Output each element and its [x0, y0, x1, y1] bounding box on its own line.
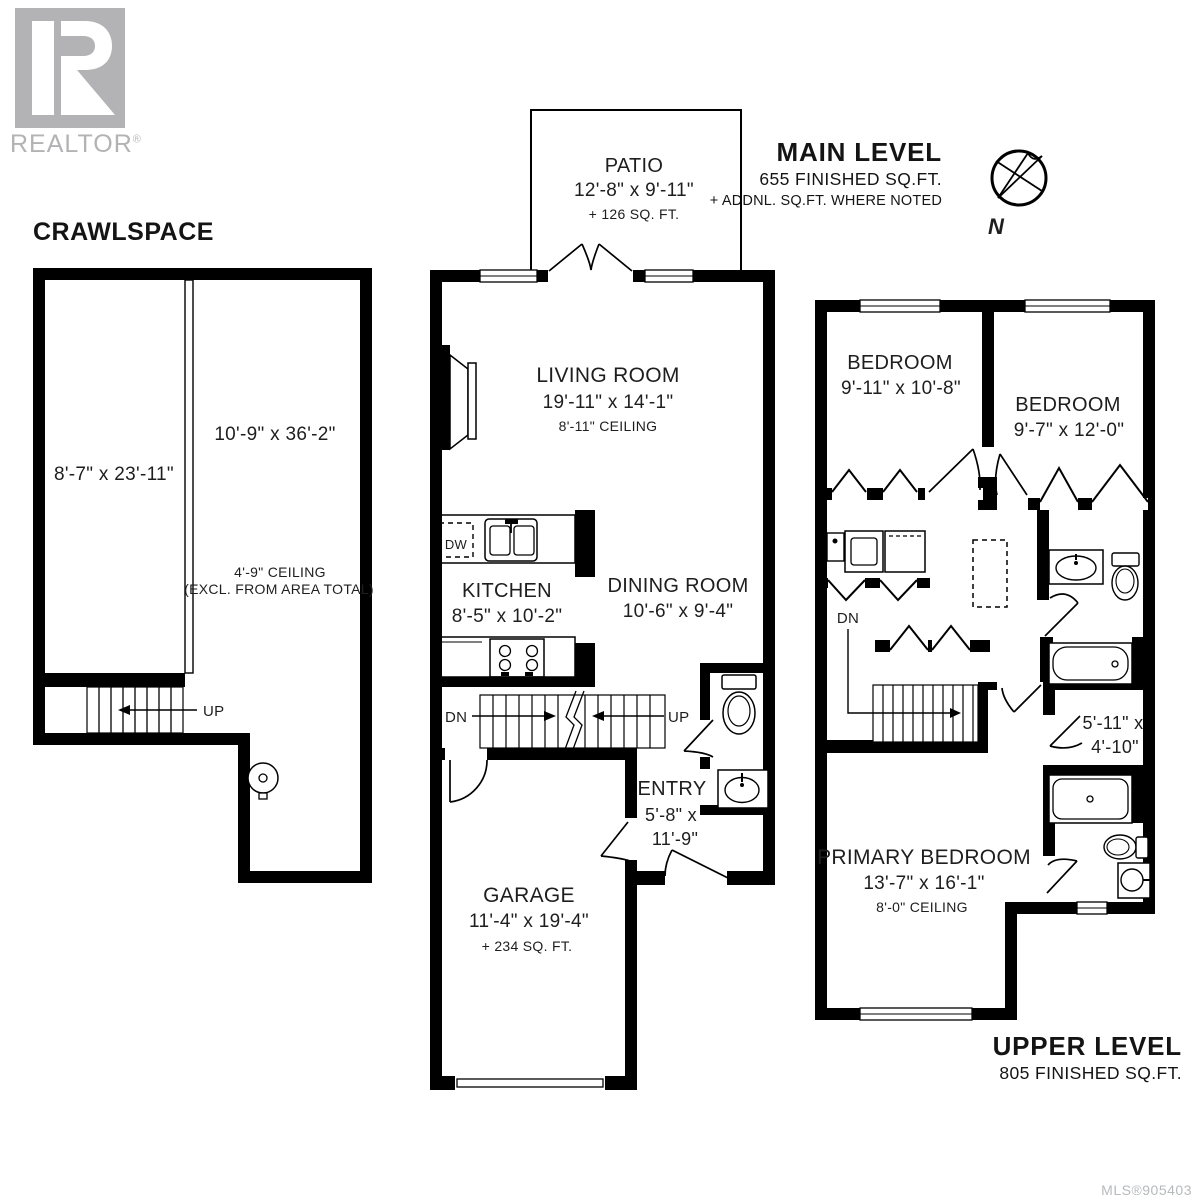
bedroom1-dims: 9'-11" x 10'-8"	[841, 378, 961, 399]
laundry-sink-icon	[827, 533, 844, 561]
crawlspace-divider-wall	[185, 280, 193, 673]
crawl-left-room-dims: 8'-7" x 23'-11"	[54, 464, 174, 485]
patio-dims: 12'-8" x 9'-11"	[574, 180, 694, 201]
compass-north-label: N	[988, 214, 1005, 239]
registered-mark: ®	[133, 134, 142, 146]
walkin-closet-dims-2: 4'-10"	[1091, 737, 1139, 757]
patio-label: PATIO	[605, 155, 664, 177]
garage-dims: 11'-4" x 19'-4"	[469, 911, 589, 932]
hall-dashed-closet	[973, 540, 1007, 607]
compass-needle-2	[998, 153, 1028, 198]
bedroom2-label: BEDROOM	[1015, 394, 1120, 416]
garage-door	[457, 1079, 603, 1087]
understairs-door	[450, 760, 487, 802]
bedroom1-door	[929, 449, 980, 492]
walkin-closet-dims-1: 5'-11" x	[1083, 713, 1144, 733]
living-room-dims: 19'-11" x 14'-1"	[543, 392, 674, 413]
bedroom1-label: BEDROOM	[847, 352, 952, 374]
realtor-wordmark: REALTOR®	[10, 130, 160, 159]
ensuite-sink-icon	[1118, 863, 1150, 898]
stair-dn-label: DN	[837, 610, 859, 627]
main-level-floorplan: PATIO 12'-8" x 9'-11" + 126 SQ. FT. LIVI…	[425, 105, 785, 1100]
bedroom2-door	[996, 454, 1027, 495]
bedroom2-dims: 9'-7" x 12'-0"	[1014, 420, 1125, 441]
stair-dn-label: DN	[445, 709, 467, 726]
realtor-wordmark-text: REALTOR	[10, 130, 133, 158]
kitchen-sink-icon	[485, 519, 537, 561]
stair-up-label: UP	[668, 709, 689, 726]
living-room-label: LIVING ROOM	[536, 364, 679, 387]
shower-icon	[1049, 775, 1132, 823]
crawl-right-room-dims: 10'-9" x 36'-2"	[214, 424, 335, 445]
laundry-closet	[827, 531, 925, 572]
powder-sink-icon	[718, 770, 768, 808]
entry-dims-1: 5'-8" x	[645, 805, 697, 825]
upper-level-area: 805 FINISHED SQ.FT.	[880, 1063, 1182, 1084]
mls-number: MLS®905403	[1101, 1182, 1192, 1198]
primary-bedroom-door	[1002, 685, 1041, 712]
bathroom-door	[1045, 594, 1078, 636]
ensuite-door	[1047, 859, 1077, 893]
crawlspace-room-wall	[45, 673, 185, 687]
crawlspace-stairs	[87, 687, 197, 733]
crawlspace-title: CRAWLSPACE	[33, 218, 214, 247]
dishwasher-label: DW	[445, 537, 468, 552]
floorplan-sheet: REALTOR® CRAWLSPACE MAIN LEVEL 655 FINIS…	[0, 0, 1200, 1200]
up-arrow-head	[118, 705, 130, 715]
washer-icon	[845, 531, 883, 572]
main-bath-sink-icon	[1049, 550, 1103, 584]
patio-area: + 126 SQ. FT.	[589, 206, 680, 222]
primary-bedroom-label: PRIMARY BEDROOM	[817, 846, 1031, 869]
main-stairs	[472, 691, 665, 752]
stove-icon	[490, 639, 544, 677]
kitchen-dims: 8'-5" x 10'-2"	[452, 606, 563, 627]
crawl-ceiling-note-1: 4'-9" CEILING	[234, 564, 326, 580]
realtor-logo	[15, 8, 125, 128]
living-room-ceiling: 8'-11" CEILING	[559, 418, 658, 434]
primary-bedroom-ceiling: 8'-0" CEILING	[876, 899, 968, 915]
upper-level-header: UPPER LEVEL 805 FINISHED SQ.FT.	[880, 1032, 1182, 1084]
upper-level-floorplan: BEDROOM 9'-11" x 10'-8" BEDROOM 9'-7" x …	[812, 296, 1160, 1024]
closet-door	[1050, 716, 1082, 748]
north-compass-icon: N	[986, 146, 1060, 240]
bathtub-icon	[1049, 643, 1132, 684]
crawl-stair-up-label: UP	[203, 703, 224, 720]
water-heater-icon	[248, 763, 278, 799]
realtor-r-stem	[32, 21, 54, 115]
kitchen-appliance-row	[433, 637, 575, 677]
entry-dims-2: 11'-9"	[652, 829, 698, 849]
dining-room-dims: 10'-6" x 9'-4"	[623, 601, 734, 622]
realtor-r-counter	[61, 36, 95, 56]
entry-label: ENTRY	[638, 778, 707, 800]
crawlspace-floorplan: 8'-7" x 23'-11" 10'-9" x 36'-2" 4'-9" CE…	[30, 264, 375, 888]
upper-level-title: UPPER LEVEL	[880, 1032, 1182, 1061]
fireplace-icon	[442, 345, 476, 450]
main-bath-toilet-icon	[1112, 553, 1139, 600]
dining-room-label: DINING ROOM	[607, 575, 748, 597]
dryer-icon	[885, 531, 925, 572]
ensuite-toilet-icon	[1104, 835, 1148, 859]
powder-toilet-icon	[722, 675, 756, 734]
garage-area: + 234 SQ. FT.	[482, 938, 573, 954]
garage-label: GARAGE	[483, 884, 575, 907]
crawl-ceiling-note-2: (EXCL. FROM AREA TOTAL)	[184, 581, 374, 597]
kitchen-label: KITCHEN	[462, 580, 552, 602]
primary-bedroom-dims: 13'-7" x 16'-1"	[863, 873, 984, 894]
